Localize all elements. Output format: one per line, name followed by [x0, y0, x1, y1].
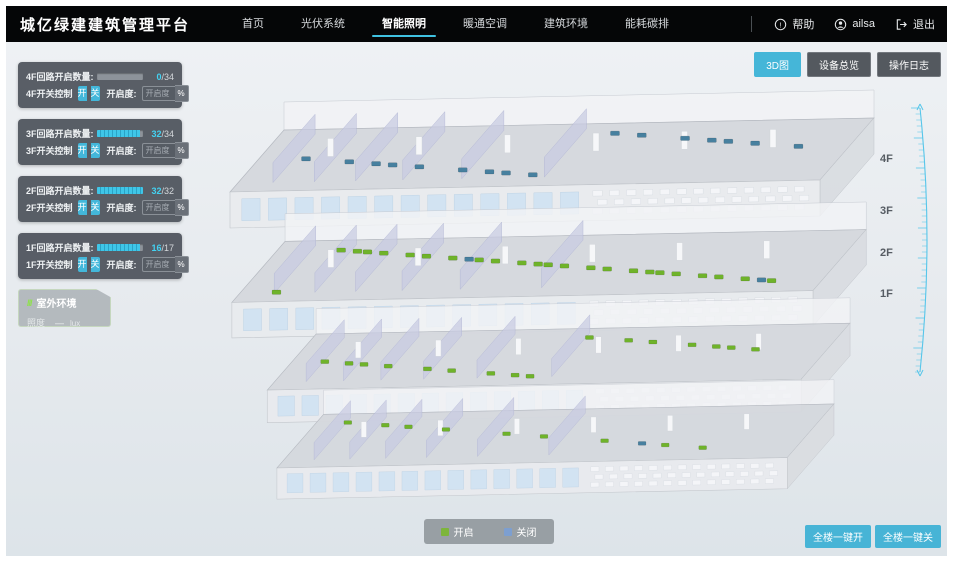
light-marker-off[interactable] [681, 136, 690, 140]
outdoor-title-label: 室外环境 [37, 295, 77, 310]
legend-item-0: 开启 [441, 524, 474, 539]
switch-off-button[interactable]: 关 [91, 86, 100, 101]
building-column [596, 337, 601, 353]
light-marker-on[interactable] [321, 360, 329, 364]
building-column [764, 241, 770, 259]
outdoor-metric-row: 照度 — lux [27, 316, 102, 329]
user-menu[interactable]: ailsa [834, 18, 875, 31]
switch-control-label: 4F开关控制 [26, 87, 73, 100]
logout-icon [895, 18, 908, 31]
switch-on-button[interactable]: 开 [78, 86, 87, 101]
dim-label: 开启度: [107, 201, 137, 214]
circuit-count-value: 3232 [151, 186, 174, 196]
light-marker-on[interactable] [384, 364, 392, 368]
open-count: 16 [151, 243, 161, 253]
nav-item-4[interactable]: 建筑环境 [544, 6, 588, 42]
floor-panel-4f: 4F回路开启数量:0344F开关控制开关开启度:% [18, 62, 182, 108]
light-marker-off[interactable] [458, 168, 467, 172]
switch-off-button[interactable]: 关 [91, 257, 100, 272]
switch-control-row: 4F开关控制开关开启度:% [26, 85, 174, 102]
building-column [676, 335, 681, 351]
light-marker-on[interactable] [655, 271, 664, 275]
dim-input[interactable] [142, 200, 175, 215]
light-marker-on[interactable] [272, 290, 281, 294]
top-bar: 城亿绿建建筑管理平台 首页光伏系统智能照明暖通空调建筑环境能耗碳排 ! 帮助 a… [6, 6, 947, 42]
circuit-count-value: 1617 [151, 243, 174, 253]
open-count: 32 [151, 186, 161, 196]
light-marker-on[interactable] [345, 361, 353, 365]
help-icon: ! [774, 18, 787, 31]
switch-on-button[interactable]: 开 [78, 257, 87, 272]
light-marker-on[interactable] [649, 340, 657, 344]
floor-label-3f: 3F [880, 205, 893, 217]
light-marker-on[interactable] [767, 278, 776, 282]
switch-control-row: 2F开关控制开关开启度:% [26, 199, 174, 216]
dim-input[interactable] [142, 86, 175, 101]
light-marker-on[interactable] [517, 261, 526, 265]
light-marker-on[interactable] [585, 336, 593, 340]
light-marker-off[interactable] [415, 165, 424, 169]
light-marker-on[interactable] [560, 264, 569, 268]
light-marker-on[interactable] [344, 421, 352, 425]
floor-panel-1f: 1F回路开启数量:16171F开关控制开关开启度:% [18, 233, 182, 279]
circuit-progress-fill [97, 244, 140, 251]
light-marker-on[interactable] [337, 248, 346, 252]
building-3d-view[interactable] [204, 88, 896, 556]
dim-input-group: % [142, 256, 189, 273]
circuit-count-row: 4F回路开启数量:034 [26, 68, 174, 85]
switch-on-button[interactable]: 开 [78, 143, 87, 158]
light-marker-on[interactable] [379, 251, 388, 255]
light-marker-on[interactable] [544, 263, 553, 267]
divider [751, 16, 752, 32]
circuit-progress-bar [97, 187, 143, 194]
switch-control-label: 3F开关控制 [26, 144, 73, 157]
illuminance-value: — [55, 318, 64, 328]
env-icon: /// [27, 298, 32, 308]
light-marker-on[interactable] [751, 347, 759, 351]
floor-label-2f: 2F [880, 247, 893, 259]
view-button-1[interactable]: 设备总览 [807, 52, 871, 77]
building-column [328, 250, 334, 268]
light-marker-on[interactable] [360, 362, 368, 366]
nav-item-1[interactable]: 光伏系统 [301, 6, 345, 42]
light-marker-on[interactable] [526, 374, 534, 378]
light-marker-on[interactable] [503, 432, 511, 436]
circuit-count-value: 034 [156, 72, 174, 82]
all-floors-button-0[interactable]: 全楼一键开 [805, 525, 871, 548]
light-marker-on[interactable] [741, 277, 750, 281]
light-marker-on[interactable] [540, 435, 548, 439]
legend: 开启关闭 [424, 519, 554, 544]
switch-off-button[interactable]: 关 [91, 200, 100, 215]
help-button[interactable]: ! 帮助 [774, 16, 814, 32]
legend-label-1: 关闭 [517, 524, 537, 539]
nav-item-3[interactable]: 暖通空调 [463, 6, 507, 42]
light-marker-on[interactable] [629, 269, 638, 273]
total-count: 17 [161, 243, 174, 253]
light-marker-on[interactable] [381, 423, 389, 427]
light-marker-off[interactable] [610, 131, 619, 135]
building-column [593, 133, 599, 151]
percent-button[interactable]: % [175, 85, 189, 102]
switch-off-button[interactable]: 关 [91, 143, 100, 158]
light-marker-on[interactable] [442, 428, 450, 432]
building-column [361, 422, 366, 438]
view-mode-buttons: 3D图设备总览操作日志 [754, 52, 941, 77]
floor-panel-3f: 3F回路开启数量:32343F开关控制开关开启度:% [18, 119, 182, 165]
light-marker-on[interactable] [601, 439, 609, 443]
circuit-count-row: 1F回路开启数量:1617 [26, 239, 174, 256]
dim-input[interactable] [142, 143, 175, 158]
circuit-count-label: 2F回路开启数量: [26, 184, 94, 197]
legend-swatch-1 [504, 528, 512, 536]
light-marker-off[interactable] [757, 278, 766, 282]
light-marker-on[interactable] [625, 338, 633, 342]
light-marker-on[interactable] [698, 274, 707, 278]
illuminance-label: 照度 [27, 316, 45, 329]
percent-button[interactable]: % [175, 142, 189, 159]
light-marker-on[interactable] [405, 425, 413, 429]
building-column [591, 417, 596, 433]
nav-item-5[interactable]: 能耗碳排 [625, 6, 669, 42]
help-label: 帮助 [792, 16, 814, 32]
floor-label-4f: 4F [880, 153, 893, 165]
circuit-progress-bar [97, 73, 143, 80]
circuit-count-label: 3F回路开启数量: [26, 127, 94, 140]
light-marker-on[interactable] [511, 373, 519, 377]
light-marker-off[interactable] [637, 133, 646, 137]
svg-text:!: ! [780, 20, 782, 29]
legend-swatch-0 [441, 528, 449, 536]
building-column [516, 338, 521, 354]
switch-control-label: 1F开关控制 [26, 258, 73, 271]
building-column [502, 246, 508, 264]
light-marker-off[interactable] [485, 170, 494, 174]
dim-input-group: % [142, 142, 189, 159]
light-marker-off[interactable] [707, 138, 716, 142]
light-marker-off[interactable] [465, 257, 474, 261]
light-marker-off[interactable] [302, 157, 311, 161]
percent-button[interactable]: % [175, 256, 189, 273]
global-buttons: 全楼一键开全楼一键关 [805, 525, 941, 548]
view-button-2[interactable]: 操作日志 [877, 52, 941, 77]
light-marker-on[interactable] [423, 367, 431, 371]
nav-item-2[interactable]: 智能照明 [382, 6, 426, 42]
legend-label-0: 开启 [454, 524, 474, 539]
building-column [514, 419, 519, 435]
light-marker-on[interactable] [661, 443, 669, 447]
dim-label: 开启度: [107, 258, 137, 271]
circuit-progress-bar [97, 244, 143, 251]
building-column [328, 138, 334, 156]
nav-item-0[interactable]: 首页 [242, 6, 264, 42]
light-marker-on[interactable] [699, 446, 707, 450]
light-marker-on[interactable] [534, 262, 543, 266]
building-column [677, 243, 683, 261]
light-marker-on[interactable] [406, 253, 415, 257]
view-button-0[interactable]: 3D图 [754, 52, 801, 77]
light-marker-off[interactable] [372, 162, 381, 166]
switch-control-row: 3F开关控制开关开启度:% [26, 142, 174, 159]
light-marker-on[interactable] [363, 250, 372, 254]
username: ailsa [852, 18, 875, 30]
light-marker-off[interactable] [388, 163, 397, 167]
circuit-progress-fill [97, 187, 143, 194]
user-area: ! 帮助 ailsa 退出 [751, 16, 935, 32]
circuit-count-label: 4F回路开启数量: [26, 70, 94, 83]
dim-label: 开启度: [107, 87, 137, 100]
light-marker-off[interactable] [528, 173, 537, 177]
light-marker-off[interactable] [345, 160, 354, 164]
circuit-count-row: 2F回路开启数量:3232 [26, 182, 174, 199]
dim-label: 开启度: [107, 144, 137, 157]
light-marker-on[interactable] [603, 267, 612, 271]
dim-input-group: % [142, 199, 189, 216]
building-floor-1f[interactable] [277, 380, 834, 499]
logout-label: 退出 [913, 16, 935, 32]
outdoor-title: /// 室外环境 [27, 295, 102, 310]
light-marker-off[interactable] [794, 144, 803, 148]
circuit-count-label: 1F回路开启数量: [26, 241, 94, 254]
dim-input-group: % [142, 85, 189, 102]
illuminance-unit: lux [70, 319, 80, 328]
light-marker-on[interactable] [672, 272, 681, 276]
light-marker-on[interactable] [487, 371, 495, 375]
building-column [589, 244, 595, 262]
total-count: 32 [161, 186, 174, 196]
light-marker-on[interactable] [645, 270, 654, 274]
outdoor-env-panel: /// 室外环境 照度 — lux [18, 289, 111, 327]
light-marker-on[interactable] [586, 266, 595, 270]
main-nav: 首页光伏系统智能照明暖通空调建筑环境能耗碳排 [242, 6, 669, 42]
light-marker-on[interactable] [714, 275, 723, 279]
floor-label-1f: 1F [880, 288, 893, 300]
switch-on-button[interactable]: 开 [78, 200, 87, 215]
switch-control-label: 2F开关控制 [26, 201, 73, 214]
light-marker-on[interactable] [353, 249, 362, 253]
light-marker-on[interactable] [422, 254, 431, 258]
building-column [415, 248, 421, 266]
circuit-progress-bar [97, 130, 143, 137]
light-marker-on[interactable] [712, 345, 720, 349]
all-floors-button-1[interactable]: 全楼一键关 [875, 525, 941, 548]
light-marker-on[interactable] [448, 256, 457, 260]
app-window: 城亿绿建建筑管理平台 首页光伏系统智能照明暖通空调建筑环境能耗碳排 ! 帮助 a… [6, 6, 947, 556]
total-count: 34 [161, 129, 174, 139]
app-title: 城亿绿建建筑管理平台 [20, 14, 190, 35]
light-marker-off[interactable] [724, 139, 733, 143]
building-column [436, 340, 441, 356]
open-count: 32 [151, 129, 161, 139]
zoom-ruler [904, 100, 944, 380]
legend-item-1: 关闭 [504, 524, 537, 539]
light-marker-on[interactable] [688, 343, 696, 347]
building-column [416, 137, 422, 155]
building-column [667, 415, 672, 431]
circuit-count-value: 3234 [151, 129, 174, 139]
light-marker-on[interactable] [727, 346, 735, 350]
light-marker-on[interactable] [448, 369, 456, 373]
circuit-count-row: 3F回路开启数量:3234 [26, 125, 174, 142]
floor-panel-2f: 2F回路开启数量:32322F开关控制开关开启度:% [18, 176, 182, 222]
main-content: 4F回路开启数量:0344F开关控制开关开启度:%3F回路开启数量:32343F… [6, 42, 947, 556]
light-marker-off[interactable] [751, 141, 760, 145]
user-icon [834, 18, 847, 31]
light-marker-on[interactable] [491, 259, 500, 263]
building-column [770, 129, 776, 147]
circuit-progress-fill [97, 130, 140, 137]
logout-button[interactable]: 退出 [895, 16, 935, 32]
total-count: 34 [161, 72, 174, 82]
light-marker-off[interactable] [502, 171, 511, 175]
building-column [744, 414, 749, 430]
light-marker-off[interactable] [638, 441, 646, 445]
building-column [355, 342, 360, 358]
switch-control-row: 1F开关控制开关开启度:% [26, 256, 174, 273]
dim-input[interactable] [142, 257, 175, 272]
percent-button[interactable]: % [175, 199, 189, 216]
building-column [505, 135, 511, 153]
light-marker-on[interactable] [475, 258, 484, 262]
